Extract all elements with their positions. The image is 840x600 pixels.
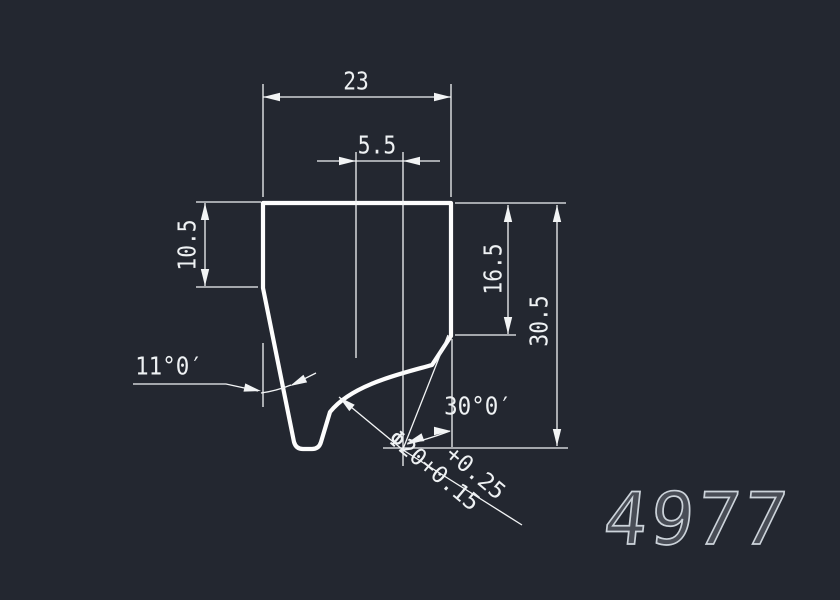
angle-label-left: 11°0′ — [135, 354, 203, 379]
angle-label-right: 30°0′ — [444, 394, 512, 419]
dim-label-overall-height: 30.5 — [527, 295, 552, 346]
dimension-lines — [133, 84, 568, 525]
dim-label-top-width: 23 — [343, 69, 369, 94]
dim-label-left-depth: 10.5 — [175, 219, 200, 270]
dim-label-right-depth: 16.5 — [481, 243, 506, 294]
part-number: 4977 — [601, 483, 794, 555]
cad-model-space: 23 5.5 10.5 16.5 30.5 11°0′ 30°0′ +0.25 … — [0, 0, 840, 600]
dim-label-slot-offset: 5.5 — [358, 133, 396, 158]
